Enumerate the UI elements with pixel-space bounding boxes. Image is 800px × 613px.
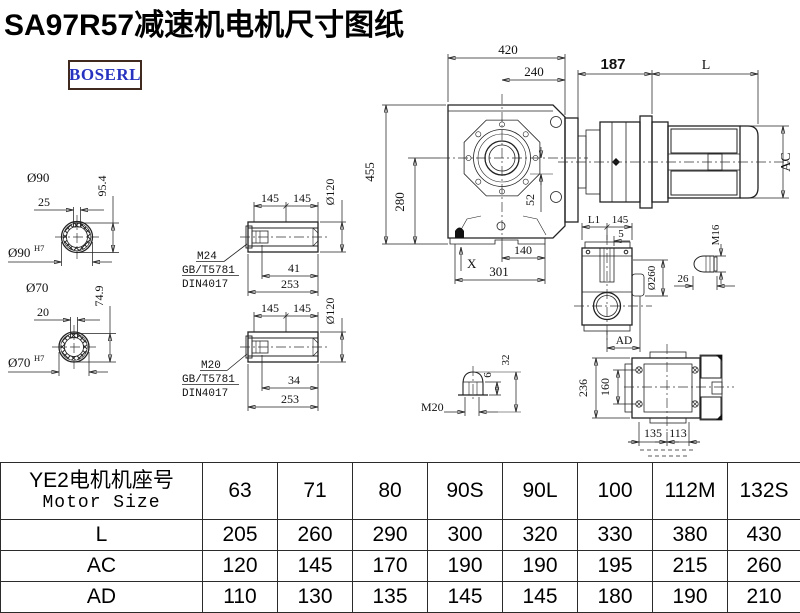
- dim-side-5: 5: [618, 228, 624, 240]
- label-fit90: Ø90: [8, 245, 30, 260]
- size-col-63: 63: [203, 463, 278, 520]
- cell-AD-100: 180: [578, 582, 653, 613]
- table-row-AC: AC 120 145 170 190 190 195 215 260: [1, 551, 800, 582]
- dim-side-26: 26: [678, 273, 690, 285]
- dim-side-AD: AD: [616, 335, 633, 347]
- dim-sleeve1-145b: 145: [293, 191, 311, 205]
- dim-side-145: 145: [612, 214, 629, 226]
- dim-side-L1: L1: [588, 214, 600, 226]
- size-col-132s: 132S: [728, 463, 800, 520]
- cell-AC-80: 170: [353, 551, 428, 582]
- label-din4017-2: DIN4017: [182, 388, 228, 400]
- size-col-112m: 112M: [653, 463, 728, 520]
- row-label-AD: AD: [1, 582, 203, 613]
- dim-240: 240: [524, 64, 544, 79]
- front-view: 420 240 455 280 52 140 301 X: [362, 42, 588, 284]
- cell-L-90l: 320: [503, 520, 578, 551]
- table-header-row: YE2电机机座号 Motor Size 63 71 80 90S 90L 100…: [1, 463, 800, 520]
- plug-detail: M20 6 32: [421, 355, 521, 417]
- dim-plug-32: 32: [500, 355, 512, 366]
- cell-AC-90l: 190: [503, 551, 578, 582]
- dim-52: 52: [523, 194, 537, 206]
- dim-sleeve1-253: 253: [281, 277, 299, 291]
- size-col-100: 100: [578, 463, 653, 520]
- dim-420: 420: [498, 42, 518, 57]
- dim-rear-135: 135: [644, 426, 662, 440]
- shaft-section-90: Ø90 25 95.4 Ø90 H7: [8, 170, 119, 266]
- table-row-AD: AD 110 130 135 145 145 180 190 210: [1, 582, 800, 613]
- cell-L-80: 290: [353, 520, 428, 551]
- dim-sleeve2-253: 253: [281, 392, 299, 406]
- dim-x-mark: X: [467, 256, 477, 271]
- cell-AC-90s: 190: [428, 551, 503, 582]
- cell-AD-80: 135: [353, 582, 428, 613]
- cell-L-63: 205: [203, 520, 278, 551]
- cell-L-100: 330: [578, 520, 653, 551]
- dim-280: 280: [392, 192, 407, 212]
- dim-sleeve1-145a: 145: [261, 191, 279, 205]
- label-fit70-sup: H7: [34, 353, 44, 363]
- dim-sleeve2-145a: 145: [261, 301, 279, 315]
- sleeve-bottom: 145 145 Ø120 M20 GB/T5781 DIN4017 34: [182, 298, 346, 411]
- label-dia70: Ø70: [26, 280, 48, 295]
- size-col-90l: 90L: [503, 463, 578, 520]
- cell-L-90s: 300: [428, 520, 503, 551]
- cell-AD-112m: 190: [653, 582, 728, 613]
- dim-key20: 20: [37, 305, 49, 319]
- dim-rear-113: 113: [669, 426, 687, 440]
- size-col-90s: 90S: [428, 463, 503, 520]
- dim-sleeve2-dia120: Ø120: [323, 298, 337, 325]
- dim-AC: AC: [779, 152, 794, 171]
- cell-AC-132s: 260: [728, 551, 800, 582]
- cell-L-71: 260: [278, 520, 353, 551]
- dim-sleeve1-dia120: Ø120: [323, 179, 337, 206]
- label-fit70: Ø70: [8, 355, 30, 370]
- label-dia90: Ø90: [27, 170, 49, 185]
- motor-size-table: YE2电机机座号 Motor Size 63 71 80 90S 90L 100…: [0, 462, 800, 613]
- dim-187: 187: [600, 56, 625, 73]
- cell-L-112m: 380: [653, 520, 728, 551]
- motor-side-view: 187 L AC: [558, 56, 794, 208]
- label-din4017-1: DIN4017: [182, 279, 228, 291]
- label-plug-m20: M20: [421, 400, 444, 414]
- dim-key25: 25: [38, 195, 50, 209]
- dim-sleeve1-41: 41: [288, 261, 300, 275]
- cell-AC-112m: 215: [653, 551, 728, 582]
- dim-140: 140: [514, 243, 532, 257]
- header-motor-size-en: Motor Size: [1, 493, 202, 514]
- dim-side-M16: M16: [710, 224, 722, 245]
- size-col-71: 71: [278, 463, 353, 520]
- row-label-L: L: [1, 520, 203, 551]
- dim-L: L: [702, 58, 711, 73]
- cell-AC-100: 195: [578, 551, 653, 582]
- cell-L-132s: 430: [728, 520, 800, 551]
- cell-AD-71: 130: [278, 582, 353, 613]
- shaft-section-70: Ø70 20 74.9 Ø70 H7: [8, 280, 116, 376]
- cell-AD-63: 110: [203, 582, 278, 613]
- technical-drawing: 420 240 455 280 52 140 301 X: [0, 30, 800, 462]
- dim-74-9: 74.9: [92, 286, 106, 307]
- dim-455: 455: [362, 162, 377, 182]
- header-motor-size-cn: YE2电机机座号: [1, 469, 202, 493]
- cell-AC-63: 120: [203, 551, 278, 582]
- dim-rear-236: 236: [576, 379, 590, 397]
- cell-AC-71: 145: [278, 551, 353, 582]
- dim-sleeve2-34: 34: [288, 373, 300, 387]
- cell-AD-90s: 145: [428, 582, 503, 613]
- dim-301: 301: [489, 264, 509, 279]
- gearbox-side-view: L1 145 5 Ø260 AD M16 26: [574, 214, 735, 352]
- dim-rear-160: 160: [598, 378, 612, 396]
- header-motor-size: YE2电机机座号 Motor Size: [1, 463, 203, 520]
- rear-view: 236 160 135 113: [576, 344, 734, 456]
- dim-side-dia260: Ø260: [646, 265, 658, 290]
- cell-AD-132s: 210: [728, 582, 800, 613]
- size-col-80: 80: [353, 463, 428, 520]
- dim-95-4: 95.4: [95, 176, 109, 197]
- dim-plug-6: 6: [482, 372, 494, 378]
- drawing-sheet: SA97R57减速机电机尺寸图纸 BOSERL: [0, 0, 800, 613]
- row-label-AC: AC: [1, 551, 203, 582]
- table-row-L: L 205 260 290 300 320 330 380 430: [1, 520, 800, 551]
- sleeve-top: 145 145 Ø120 M24 GB/T5781 DIN4017 41: [182, 179, 346, 296]
- cell-AD-90l: 145: [503, 582, 578, 613]
- dim-sleeve2-145b: 145: [293, 301, 311, 315]
- label-fit90-sup: H7: [34, 243, 44, 253]
